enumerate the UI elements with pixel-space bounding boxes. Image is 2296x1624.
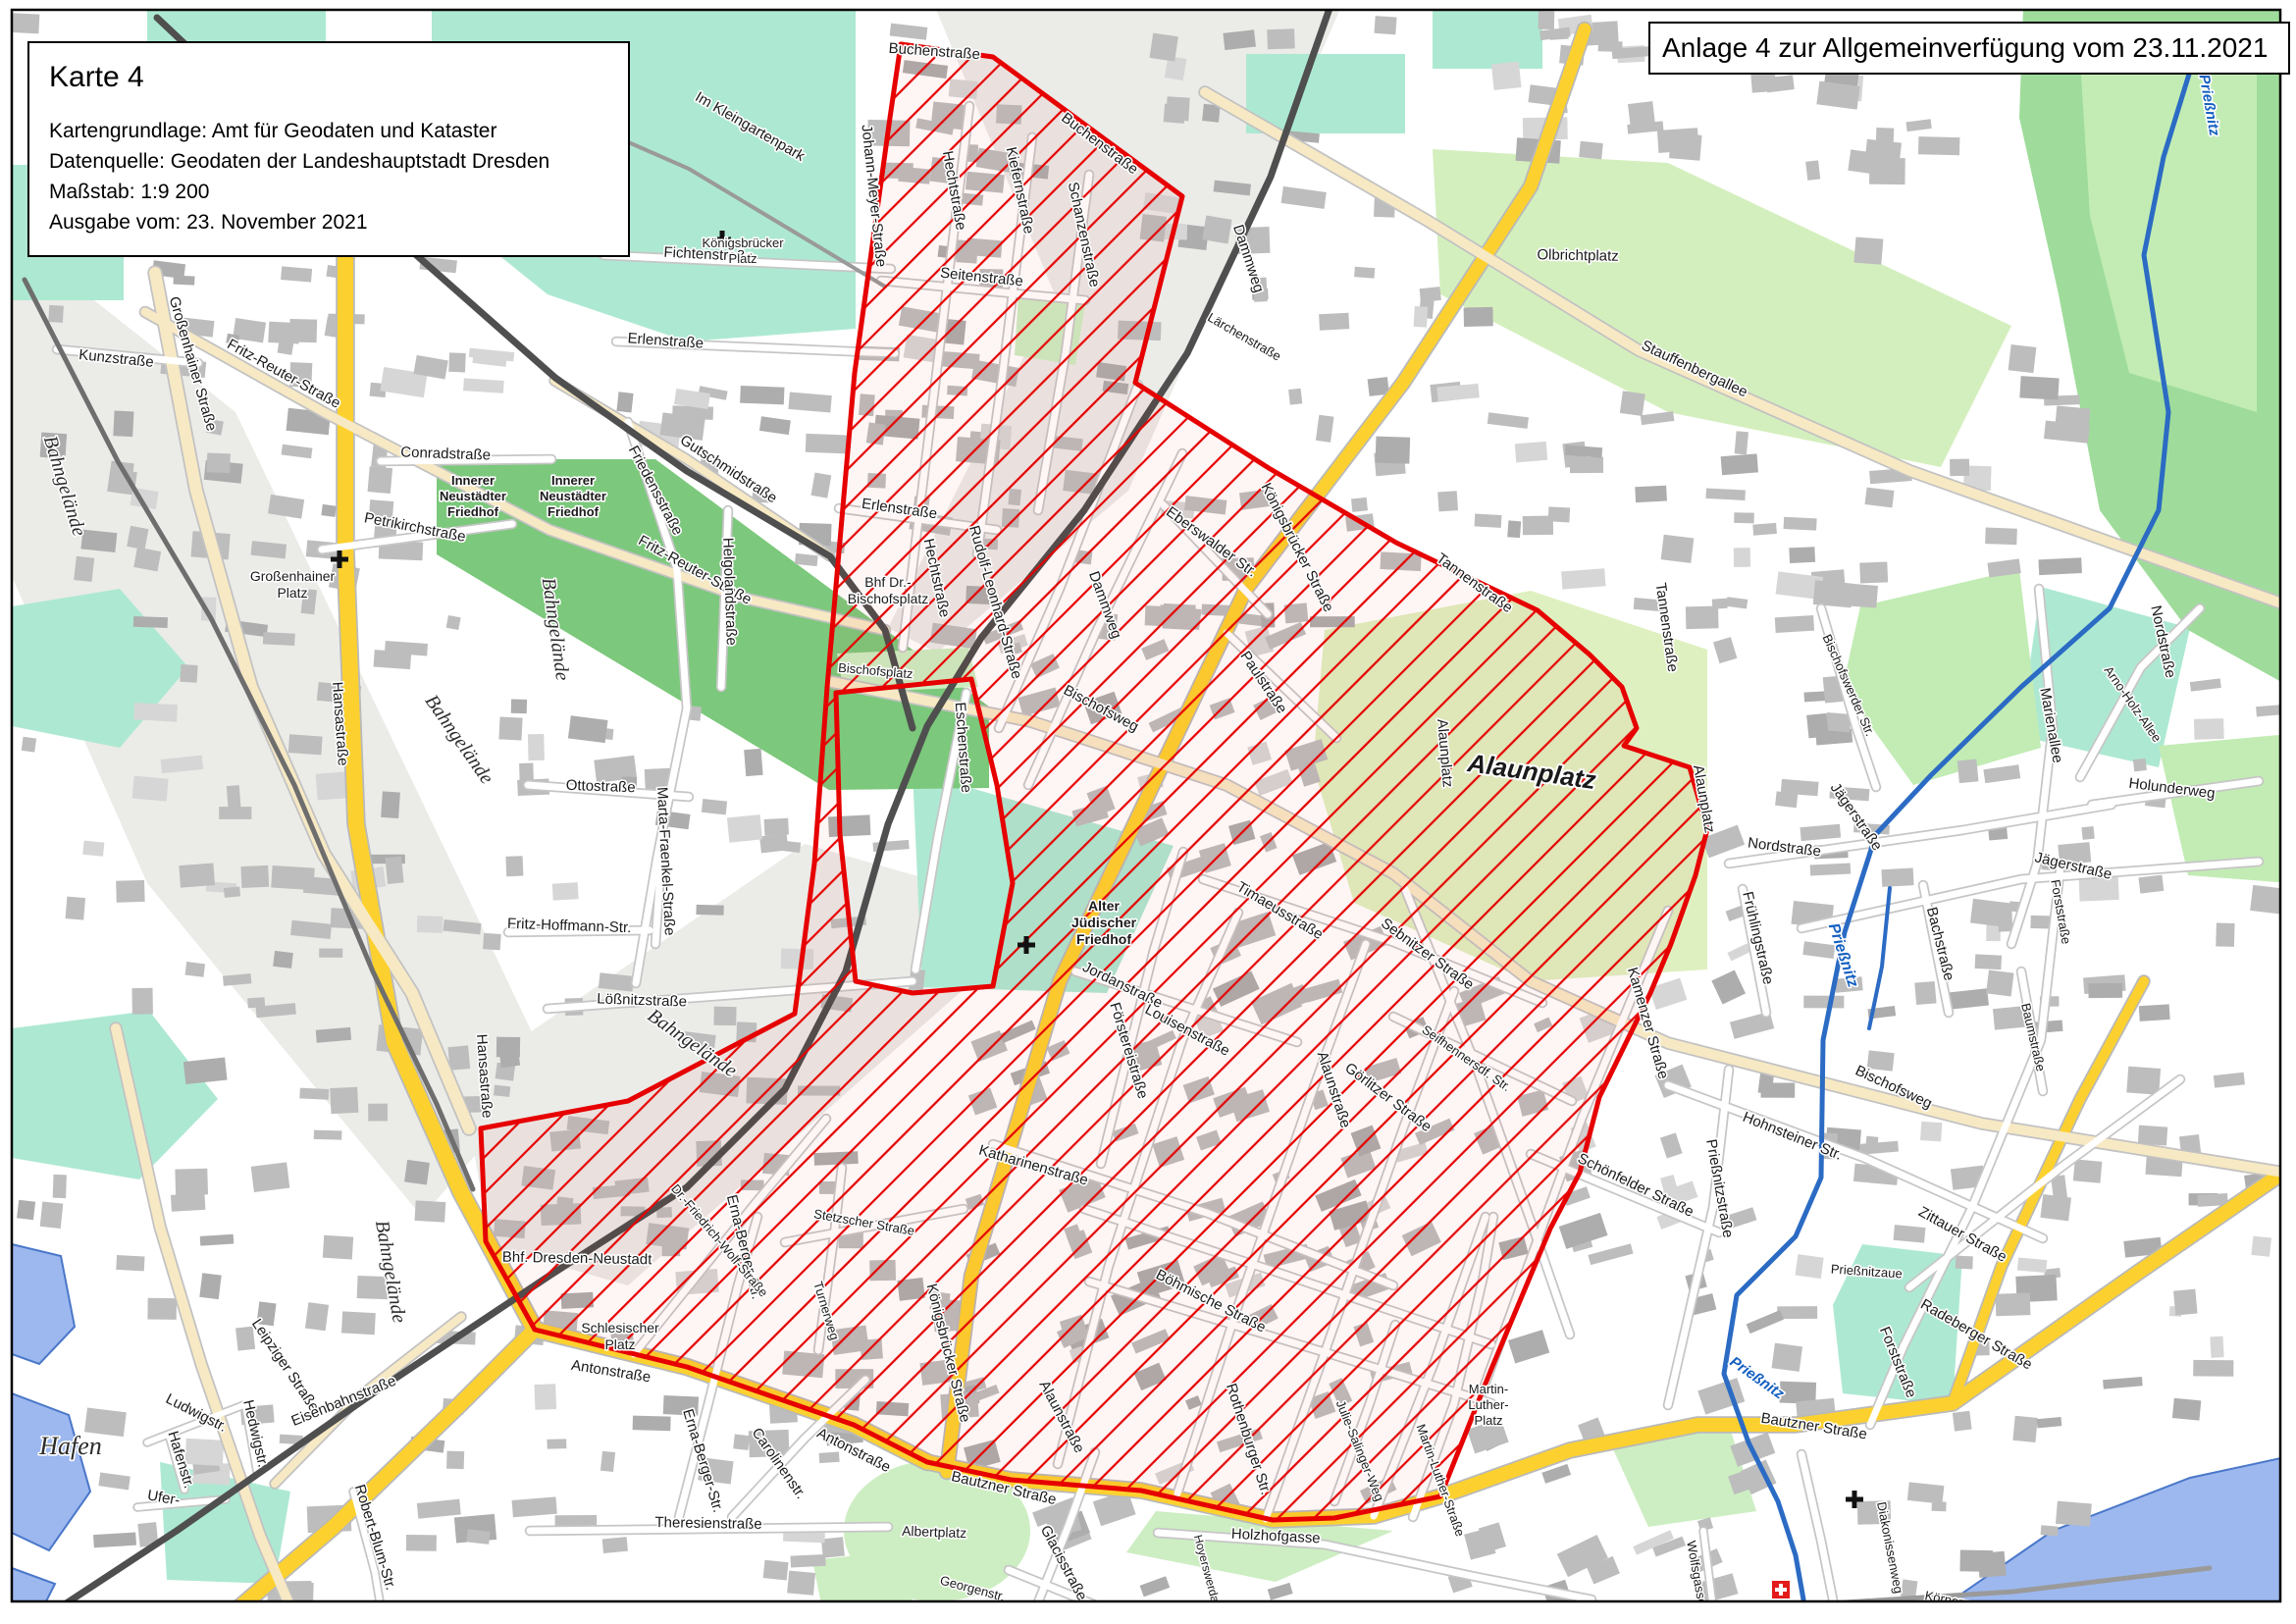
teal-11 [1246, 54, 1405, 133]
legend-box: Karte 4 Kartengrundlage: Amt für Geodate… [27, 41, 630, 257]
legend-line-basemap: Kartengrundlage: Amt für Geodaten und Ka… [49, 116, 608, 146]
label-bhf-dresden-neustadt: Bhf. Dresden-Neustadt [502, 1249, 653, 1269]
legend-line-issue-date: Ausgabe vom: 23. November 2021 [49, 207, 608, 237]
label-theresienstra-e: Theresienstraße [654, 1514, 761, 1533]
legend-line-scale: Maßstab: 1:9 200 [49, 177, 608, 207]
annex-title: Anlage 4 zur Allgemeinverfügung vom 23.1… [1662, 32, 2268, 64]
legend-line-datasource: Datenquelle: Geodaten der Landeshauptsta… [49, 146, 608, 177]
label-olbrichtplatz: Olbrichtplatz [1537, 246, 1619, 264]
label-albertplatz: Albertplatz [902, 1523, 967, 1541]
label-ottostra-e: Ottostraße [565, 777, 635, 796]
map-page: Im KleingartenparkJohann-Meyer-StraßeBuc… [0, 0, 2296, 1624]
teal-12 [1433, 10, 1542, 69]
label-hafen: Hafen [38, 1432, 102, 1460]
label-l-nitzstra-e: Lößnitzstraße [597, 990, 687, 1010]
hospital-icon [1772, 1581, 1790, 1598]
label-conradstra-e: Conradstraße [400, 444, 491, 463]
label-martin-luther-platz: Martin-Luther-Platz [1468, 1382, 1508, 1428]
legend-heading: Karte 4 [49, 61, 608, 94]
title-box: Anlage 4 zur Allgemeinverfügung vom 23.1… [1648, 22, 2290, 75]
